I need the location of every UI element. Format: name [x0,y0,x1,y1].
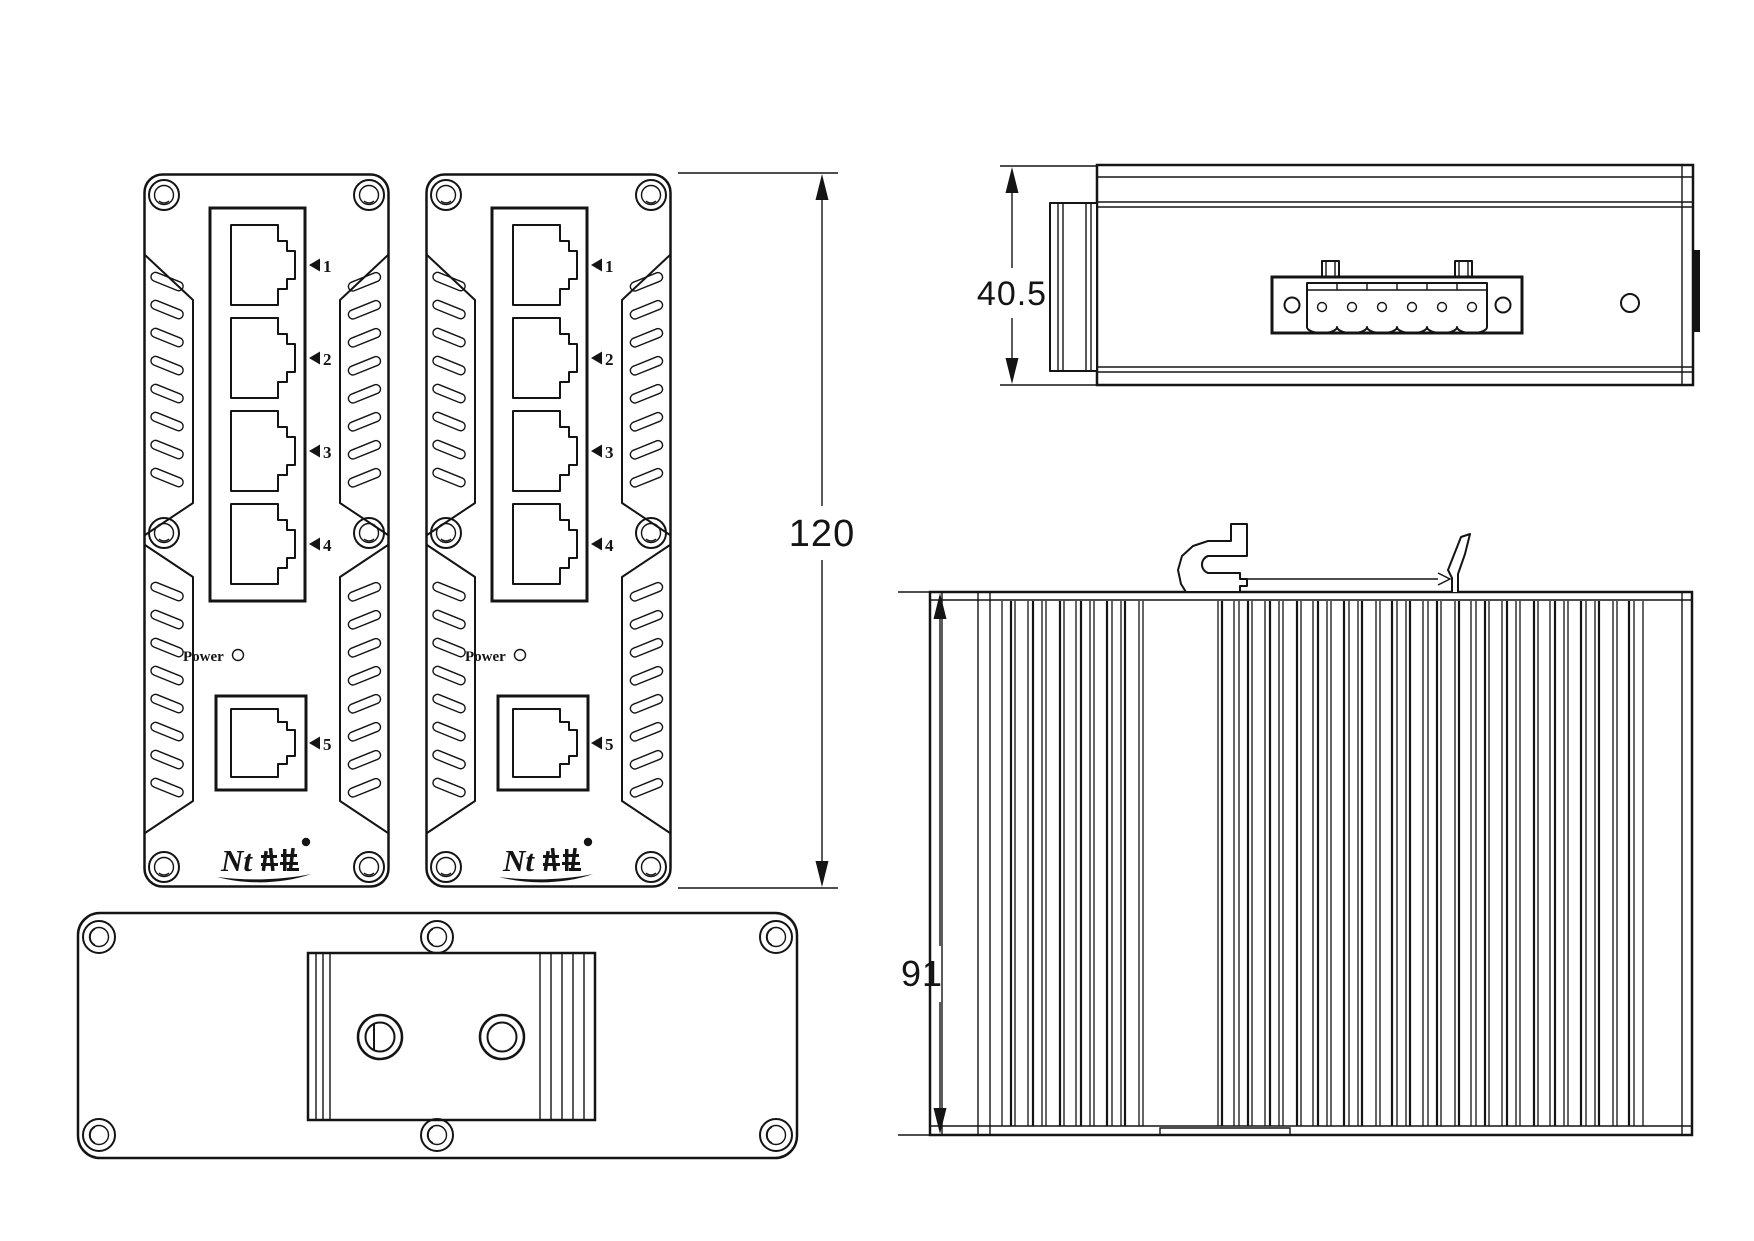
clip-hook [1178,524,1247,592]
dimension-drawing: 1 2 3 4 Power 5 [0,0,1754,1241]
din-clip-top [1050,203,1097,371]
clip-latch-lever [1448,534,1470,592]
dimension-front-height: 120 [678,173,855,888]
rail-end-notch [1438,573,1450,585]
din-clip-block [1050,203,1097,371]
drawing-canvas: 1 2 3 4 Power 5 [0,0,1754,1241]
arrow-up-icon [816,174,829,200]
arrow-down-icon [816,861,829,887]
front-view-left [145,175,389,887]
top-view-outline [1097,165,1693,385]
arrow-down-icon [1006,358,1019,384]
din-rail-clip [1178,524,1470,592]
arrow-up-icon [1006,167,1019,193]
side-view-outline [930,592,1692,1135]
dimension-value: 120 [789,513,855,555]
dimension-value: 40.5 [977,275,1047,313]
bottom-view [78,913,797,1158]
top-view [1050,165,1700,385]
right-side-tab [1693,250,1700,332]
dimension-value: 91 [901,953,943,994]
side-view [930,524,1692,1135]
front-view-right [427,175,671,887]
